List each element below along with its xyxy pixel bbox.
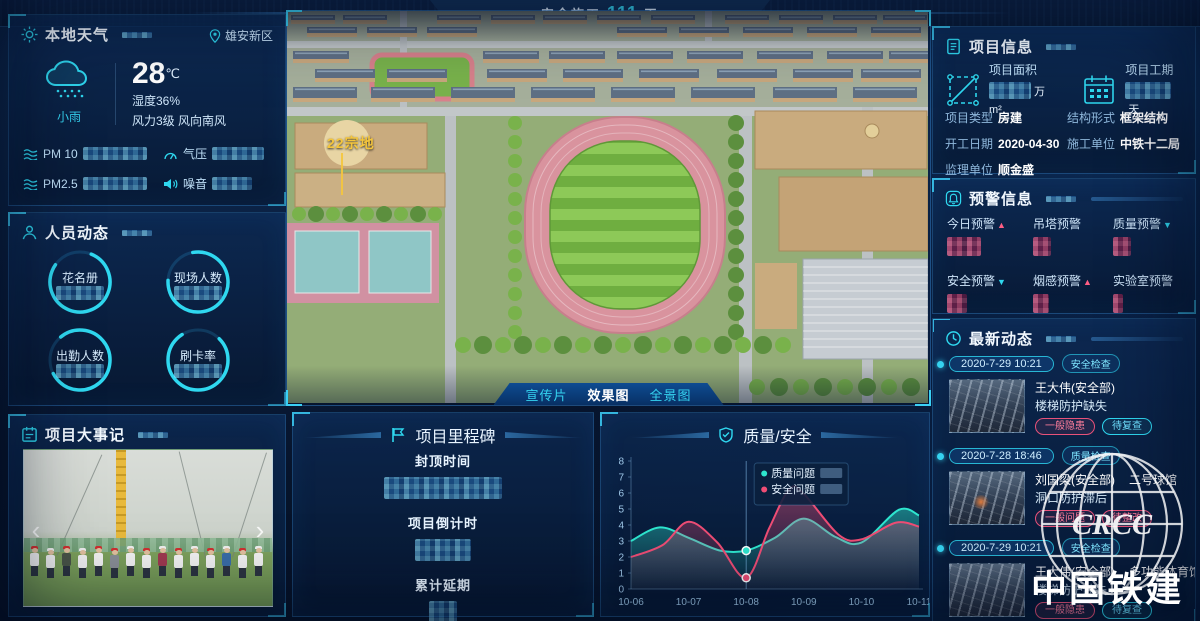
humidity: 湿度36% [132,92,226,109]
svg-text:1: 1 [618,569,624,580]
updates-title: 最新动态 [969,328,1033,349]
warning-crane-value [1033,237,1051,256]
mist-icon [23,178,38,190]
warning-quality-value [1113,237,1131,256]
update-date-badge: 2020-7-29 10:21 [949,540,1054,556]
update-person: 王大伟(安全部) [1035,565,1115,579]
quality-title: 质量/安全 [743,423,811,447]
update-item[interactable]: 2020-7-29 10:21 安全检查 王大伟(安全部) 楼梯防护缺失 一般隐… [933,349,1195,441]
weather-readings: 28℃ 湿度36% 风力3级 风向南风 [116,59,226,131]
milestone-topping-label: 封顶时间 [293,451,593,470]
photo-person [142,548,151,578]
weather-condition: 小雨 [23,108,115,125]
svg-text:10-08: 10-08 [733,597,759,608]
trend-down-icon: ▼ [1163,220,1172,230]
photo-prev-button[interactable]: ‹ [26,516,46,546]
warning-quality: 质量预警▼ [1113,215,1185,256]
update-date-badge: 2020-7-29 10:21 [949,356,1054,372]
update-person: 刘国梁(安全部) [1035,473,1115,487]
warning-lab: 实验室预警 [1113,272,1185,313]
mist-icon [23,148,38,160]
milestone-topping-value [384,477,502,499]
warning-today-value [947,237,981,256]
weather-main: 小雨 28℃ 湿度36% 风力3级 风向南风 [23,59,271,131]
update-person: 王大伟(安全部) [1035,381,1115,395]
header-wing [505,432,583,438]
svg-text:10-06: 10-06 [618,597,644,608]
person-icon [21,224,38,241]
metric-noise: 噪音 [163,175,273,192]
warning-lab-value [1113,294,1123,313]
warnings-header: 预警信息 [933,179,1195,214]
milestone-panel: 项目里程碑 封顶时间 项目倒计时 累计延期 [292,412,594,617]
photo-person [206,548,215,578]
events-header-code [138,432,168,438]
field-start-date: 开工日期2020-04-30 [945,135,1067,152]
temperature-value: 28 [132,57,165,90]
project-info-title: 项目信息 [969,36,1033,57]
svg-text:4: 4 [618,521,624,532]
trend-down-icon: ▼ [997,277,1006,287]
weather-metrics: PM 10 气压 PM2.5 噪音 [23,145,273,192]
metric-noise-label: 噪音 [183,175,207,192]
metric-pm25-label: PM2.5 [43,177,78,191]
update-tag: 待复查 [1102,418,1152,435]
updates-header-code [1046,336,1076,342]
milestone-delay: 累计延期 [293,575,593,621]
photo-person [94,546,103,576]
metric-pm25: PM2.5 [23,175,163,192]
svg-text:7: 7 [618,473,624,484]
weather-condition-block: 小雨 [23,59,115,131]
gauge-onsite-value [174,286,222,300]
document-icon [945,38,962,55]
events-header: 项目大事记 [9,415,285,450]
alarm-bell-icon [945,190,962,207]
project-info-header: 项目信息 [933,27,1195,62]
warning-crane: 吊塔预警 [1033,215,1113,256]
warning-safety-value [947,294,967,313]
update-date-badge: 2020-7-28 18:46 [949,448,1054,464]
svg-text:5: 5 [618,505,624,516]
updates-list: 2020-7-29 10:21 安全检查 王大伟(安全部) 楼梯防护缺失 一般隐… [933,349,1195,621]
photo-person [110,548,119,578]
update-location: 二号球馆 [1129,473,1177,487]
update-tag: 待整改 [1102,510,1152,527]
metric-pressure-value [212,147,264,160]
svg-text:安全问题: 安全问题 [771,482,815,496]
field-supervisor: 监理单位顺金盛 [945,161,1067,178]
dashboard-root: 安全施工 111 天 本地天气 雄安新区 [0,0,1200,621]
stat-duration-label: 项目工期 [1125,61,1183,78]
warning-smoke-value [1033,294,1049,313]
warnings-header-line [1091,197,1183,201]
gauge-onsite-label: 现场人数 [157,269,239,286]
photo-person [62,546,71,576]
view-button-promo[interactable]: 宣传片 [525,385,567,404]
photo-person [46,548,55,578]
metric-pm25-value [83,177,147,190]
update-thumbnail[interactable] [949,563,1025,617]
quality-chart-canvas: 01234567810-0610-0710-0810-0910-1010-11质… [601,447,929,615]
clock-icon [945,330,962,347]
project-info-panel: 项目信息 项目面积 万m² [932,26,1196,174]
field-contractor: 施工单位中铁十二局 [1067,135,1189,152]
photo-people-row [24,546,272,592]
milestone-title: 项目里程碑 [415,423,495,447]
updates-panel: 最新动态 2020-7-29 10:21 安全检查 王大伟(安全部) 楼梯防护缺… [932,318,1196,621]
update-category-badge: 安全检查 [1062,354,1120,373]
svg-text:0: 0 [618,585,624,596]
gauge-swipe-rate: 刷卡率 [157,323,239,399]
gauge-swipe-rate-value [174,364,222,378]
update-issue: 楼梯防护缺失 [1035,581,1195,599]
header-wing [631,432,709,438]
milestone-delay-value [429,601,457,621]
events-photo[interactable]: ‹ › [23,449,273,607]
temperature-unit: ℃ [165,66,180,81]
warnings-grid: 今日预警▲ 吊塔预警 质量预警▼ 安全预警▼ 烟感预警▲ 实验室预警 [947,215,1185,313]
metric-pressure: 气压 [163,145,273,162]
photo-crane [116,450,126,546]
photo-person [30,546,39,576]
update-thumbnail[interactable] [949,471,1025,525]
photo-next-button[interactable]: › [250,516,270,546]
update-location: 多功能体育馆 [1129,565,1196,579]
update-category-badge: 质量检查 [1062,446,1120,465]
quality-chart[interactable]: 01234567810-0610-0710-0810-0910-1010-11质… [601,447,929,615]
metric-pm10: PM 10 [23,145,163,162]
location-label: 雄安新区 [225,27,273,44]
shield-check-icon [718,427,734,443]
personnel-panel: 人员动态 花名册 现场人数 出勤人数 刷卡率 [8,212,286,406]
milestone-countdown: 项目倒计时 [293,513,593,561]
project-info-header-code [1046,44,1076,50]
site-3d-view[interactable]: 22宗地 宣传片 效果图 全景图 [286,10,931,406]
sun-icon [21,26,38,43]
speaker-icon [163,178,178,190]
milestone-list: 封顶时间 项目倒计时 累计延期 [293,451,593,621]
gauge-onsite: 现场人数 [157,245,239,321]
milestone-countdown-value [415,539,471,561]
warning-smoke: 烟感预警▲ [1033,272,1113,313]
events-panel: 项目大事记 ‹ › [8,414,286,617]
metric-pm10-value [83,147,147,160]
svg-text:10-10: 10-10 [849,597,875,608]
site-render [287,11,928,403]
warnings-title: 预警信息 [969,188,1033,209]
personnel-header-code [122,230,152,236]
wind: 风力3级 风向南风 [132,112,226,129]
svg-text:6: 6 [618,489,624,500]
update-category-badge: 安全检查 [1062,538,1120,557]
milestone-topping: 封顶时间 [293,451,593,499]
update-issue: 楼梯防护缺失 [1035,397,1152,415]
svg-text:质量问题: 质量问题 [771,467,815,480]
field-project-type: 项目类型房建 [945,109,1067,126]
header-wing [821,432,899,438]
rain-cloud-icon [42,59,96,101]
gauge-icon [163,148,178,160]
update-thumbnail[interactable] [949,379,1025,433]
weather-panel: 本地天气 雄安新区 小雨 2 [8,14,286,206]
photo-person [158,546,167,576]
trend-up-icon: ▲ [997,220,1006,230]
update-item[interactable]: 2020-7-28 18:46 质量检查 刘国梁(安全部)二号球馆 洞口防护滞后… [933,441,1195,533]
gauge-attendance: 出勤人数 [39,323,121,399]
photo-person [78,548,87,578]
update-tag: 一般隐患 [1035,418,1095,435]
photo-person [174,548,183,578]
flag-icon [390,427,406,443]
warnings-panel: 预警信息 今日预警▲ 吊塔预警 质量预警▼ 安全预警▼ 烟感预警▲ [932,178,1196,314]
update-tag: 一般隐患 [1035,602,1095,619]
warning-safety: 安全预警▼ [947,272,1033,313]
field-structure: 结构形式框架结构 [1067,109,1189,126]
stat-area-value [989,82,1031,99]
photo-person [126,546,135,576]
events-title: 项目大事记 [45,424,125,445]
personnel-gauges: 花名册 现场人数 出勤人数 刷卡率 [9,243,285,403]
personnel-title: 人员动态 [45,222,109,243]
view-button-panorama[interactable]: 全景图 [650,385,692,404]
svg-text:3: 3 [618,537,624,548]
milestone-delay-label: 累计延期 [293,575,593,594]
warning-today: 今日预警▲ [947,215,1033,256]
gauge-attendance-value [56,364,104,378]
svg-text:2: 2 [618,553,624,564]
svg-text:8: 8 [618,457,624,468]
photo-person [190,546,199,576]
location-button[interactable]: 雄安新区 [209,27,273,44]
photo-person [254,546,263,576]
gauge-roster-label: 花名册 [39,269,121,286]
updates-header-line [1091,337,1183,341]
photo-person [238,548,247,578]
calendar-note-icon [21,426,38,443]
gauge-attendance-label: 出勤人数 [39,347,121,364]
view-button-render[interactable]: 效果图 [587,385,629,404]
quality-header: 质量/安全 [601,413,929,451]
view-switcher: 宣传片 效果图 全景图 [494,383,724,405]
milestone-countdown-label: 项目倒计时 [293,513,593,532]
warnings-header-code [1046,196,1076,202]
svg-text:10-09: 10-09 [791,597,817,608]
stat-duration-value [1125,82,1171,99]
update-tag: 一般问题 [1035,510,1095,527]
update-issue: 洞口防护滞后 [1035,489,1177,507]
metric-pm10-label: PM 10 [43,147,78,161]
header-wing [303,432,381,438]
gauge-swipe-rate-label: 刷卡率 [157,347,239,364]
measure-area-icon [945,72,981,108]
plot-label: 22宗地 [327,133,375,153]
quality-safety-panel: 质量/安全 01234567810-0610-0710-0810-0910-10… [600,412,930,617]
gauge-roster-value [56,286,104,300]
photo-person [222,546,231,576]
trend-up-icon: ▲ [1083,277,1092,287]
svg-text:10-11: 10-11 [907,597,929,608]
calendar-icon [1081,72,1117,108]
weather-header-code [122,32,152,38]
update-item[interactable]: 2020-7-29 10:21 安全检查 王大伟(安全部)多功能体育馆 楼梯防护… [933,533,1195,621]
weather-title: 本地天气 [45,24,109,45]
metric-noise-value [212,177,252,190]
metric-pressure-label: 气压 [183,145,207,162]
gauge-roster: 花名册 [39,245,121,321]
stat-area-label: 项目面积 [989,61,1055,78]
pin-icon [209,29,221,43]
project-fields: 项目类型房建 结构形式框架结构 开工日期2020-04-30 施工单位中铁十二局… [945,109,1189,178]
update-tag: 待复查 [1102,602,1152,619]
milestone-header: 项目里程碑 [293,413,593,451]
svg-text:10-07: 10-07 [676,597,702,608]
